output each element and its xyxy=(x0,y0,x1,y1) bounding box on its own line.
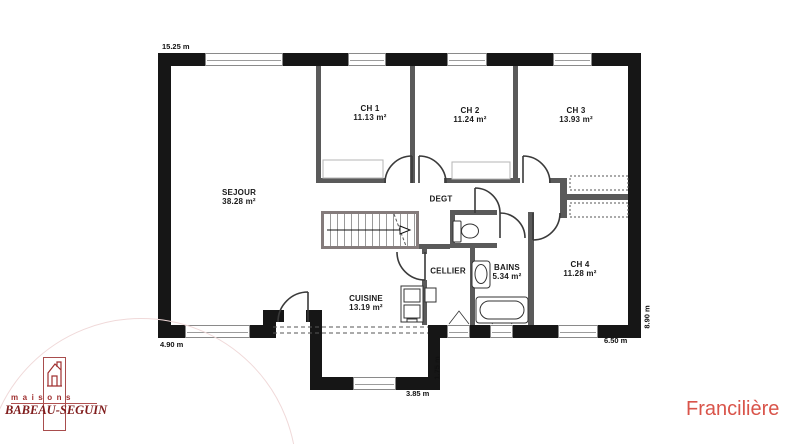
room-label-bains: BAINS 5.34 m² xyxy=(493,263,522,281)
kitchen-sink-icon xyxy=(401,286,423,322)
furniture-ch2 xyxy=(452,162,510,179)
wall-cuisine-cellier-bottom xyxy=(422,280,427,325)
dimension-top-width: 15.25 m xyxy=(162,42,190,51)
wall-closet-divider xyxy=(567,194,628,200)
door-arc-cellier xyxy=(397,252,425,280)
window-sejour-top xyxy=(205,53,283,66)
floor-plan-canvas: SEJOUR 38.28 m² CH 1 11.13 m² CH 2 11.24… xyxy=(0,0,800,444)
dimension-bottom-right: 6.50 m xyxy=(604,336,627,345)
house-logo-icon xyxy=(44,360,65,394)
room-area: 5.34 m² xyxy=(493,272,522,281)
room-name: CUISINE xyxy=(349,294,383,303)
door-arc-ch3 xyxy=(523,156,550,183)
wall-corridor-a xyxy=(316,178,386,183)
cuisine-limit-dashed xyxy=(273,327,428,333)
room-label-ch4: CH 4 11.28 m² xyxy=(563,260,596,278)
room-name: CH 1 xyxy=(353,104,386,113)
wall-left xyxy=(158,53,171,338)
wall-corridor-b xyxy=(444,178,520,183)
wall-bump-bottom-a xyxy=(310,377,355,390)
wall-bottom-a xyxy=(428,325,447,338)
wall-under-stairs xyxy=(419,244,450,249)
bathtub-icon xyxy=(476,297,528,323)
v-mark-bains-window xyxy=(492,311,512,324)
room-name: SEJOUR xyxy=(222,188,256,197)
dimension-porch-depth: 1.75 m xyxy=(433,356,442,379)
dimension-porch-width: 3.85 m xyxy=(406,389,429,398)
window-opening-marks xyxy=(449,311,512,324)
window-bains-small xyxy=(490,325,513,338)
door-arc-ch4 xyxy=(533,213,560,240)
dimension-right-height: 8.90 m xyxy=(643,305,652,328)
v-mark-cellier-window xyxy=(449,311,469,324)
wall-closet-stub xyxy=(560,178,567,218)
room-name: BAINS xyxy=(493,263,522,272)
room-name: CH 2 xyxy=(453,106,486,115)
wall-sejour-ch1 xyxy=(316,66,321,183)
room-label-sejour: SEJOUR 38.28 m² xyxy=(222,188,256,206)
room-name: CH 3 xyxy=(559,106,593,115)
model-title: Francilière xyxy=(686,398,779,421)
window-ch4 xyxy=(558,325,598,338)
wall-ch2-ch3 xyxy=(513,66,518,183)
door-arc-bains xyxy=(500,213,525,238)
door-arc-ch1 xyxy=(385,156,412,183)
room-name: CELLIER xyxy=(430,267,466,276)
room-area: 13.19 m² xyxy=(349,303,383,312)
wall-bottom-b xyxy=(470,325,490,338)
wall-entry-left xyxy=(268,310,284,322)
wall-cellier-bains xyxy=(470,248,475,325)
window-ch3 xyxy=(553,53,592,66)
window-ch1 xyxy=(348,53,386,66)
room-area: 11.24 m² xyxy=(453,115,486,124)
wall-bains-ch4 xyxy=(528,212,534,325)
room-label-ch1: CH 1 11.13 m² xyxy=(353,104,386,122)
room-area: 13.93 m² xyxy=(559,115,593,124)
wall-bottom-c xyxy=(513,325,558,338)
wall-ch1-ch2 xyxy=(410,66,415,183)
wall-wc-top xyxy=(450,210,497,215)
room-label-cuisine: CUISINE 13.19 m² xyxy=(349,294,383,312)
closet-ch4-dashed xyxy=(570,203,628,217)
staircase xyxy=(321,211,419,249)
room-label-degt: DEGT xyxy=(429,195,452,204)
room-area: 11.28 m² xyxy=(563,269,596,278)
toilet-icon xyxy=(453,221,479,242)
room-name: CH 4 xyxy=(563,260,596,269)
closet-ch3-dashed xyxy=(570,176,628,190)
door-arc-ch2 xyxy=(419,156,446,183)
room-area: 38.28 m² xyxy=(222,197,256,206)
room-label-ch3: CH 3 13.93 m² xyxy=(559,106,593,124)
furniture-ch1 xyxy=(323,160,383,178)
logo-brand-bottom: BABEAU-SEGUIN xyxy=(5,403,107,418)
wall-right xyxy=(628,53,641,338)
room-area: 11.13 m² xyxy=(353,113,386,122)
room-label-ch2: CH 2 11.24 m² xyxy=(453,106,486,124)
room-name: DEGT xyxy=(429,195,452,204)
window-ch2 xyxy=(447,53,487,66)
window-cellier-small xyxy=(447,325,470,338)
window-cuisine xyxy=(353,377,396,390)
room-label-cellier: CELLIER xyxy=(430,267,466,276)
